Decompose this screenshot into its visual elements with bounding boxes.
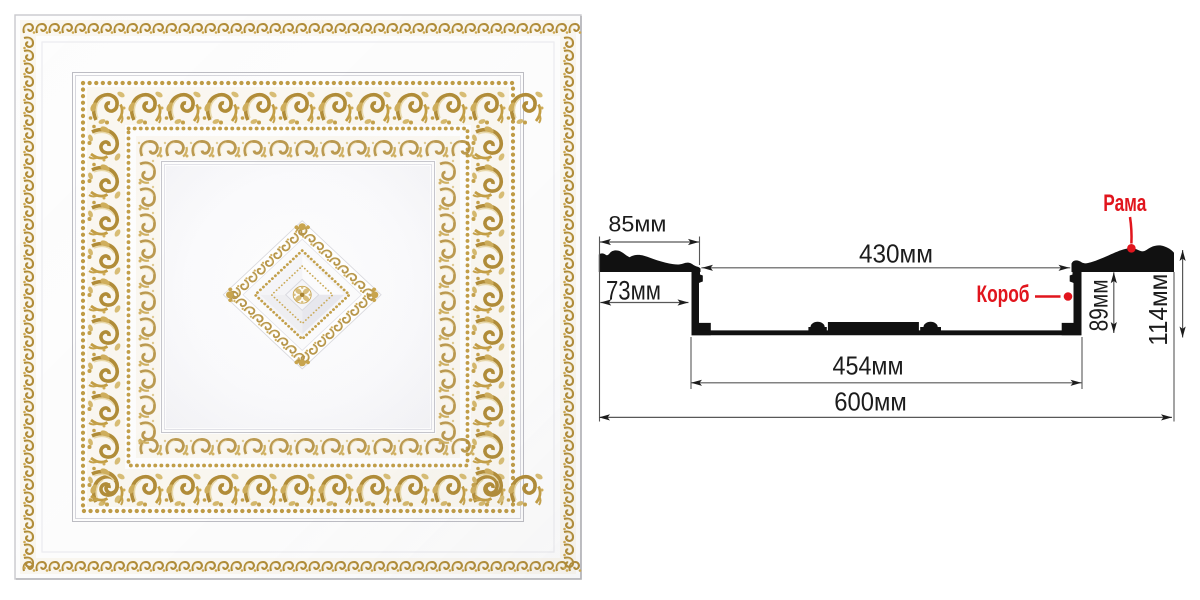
svg-text:430мм: 430мм [859,239,933,269]
svg-text:89мм: 89мм [1084,279,1114,331]
svg-text:114мм: 114мм [1143,274,1173,346]
svg-text:Рама: Рама [1103,190,1146,217]
svg-text:73мм: 73мм [606,276,661,306]
svg-text:454мм: 454мм [833,351,904,381]
svg-text:85мм: 85мм [608,211,666,236]
svg-text:600мм: 600мм [834,387,907,417]
svg-text:Короб: Короб [977,281,1030,308]
